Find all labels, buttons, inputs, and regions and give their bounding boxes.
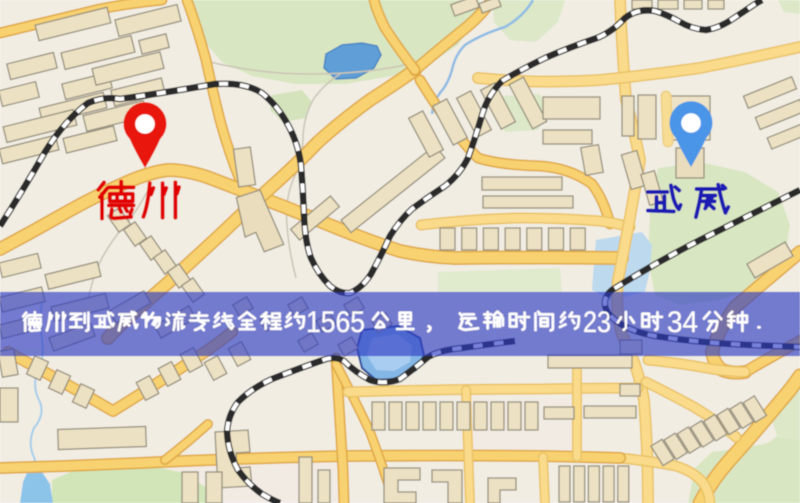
svg-text:1565: 1565 [306,306,365,339]
svg-text:23: 23 [583,306,611,339]
svg-text:34: 34 [667,306,698,339]
